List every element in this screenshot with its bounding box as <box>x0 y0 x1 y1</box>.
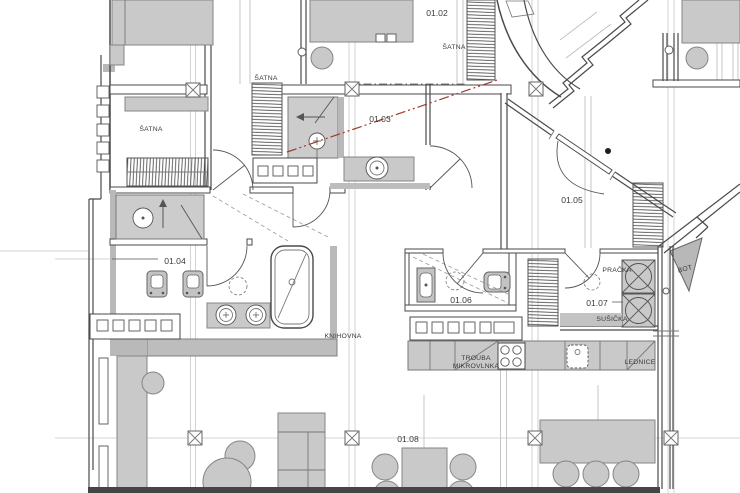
floor-plan-canvas: 01.02 01.03 01.04 01.05 01.06 01.07 01.0… <box>0 0 740 493</box>
floor-plan-page: 01.02 01.03 01.04 01.05 01.06 01.07 01.0… <box>0 0 740 493</box>
wardrobe-hatch-left <box>127 158 208 186</box>
room-label-0103: 01.03 <box>369 114 391 124</box>
wardrobe-hatch-hall <box>528 259 558 326</box>
dining-table <box>372 448 476 493</box>
chair <box>450 454 476 480</box>
bathtub <box>271 246 313 328</box>
washing-machine <box>622 260 655 293</box>
window-pane <box>99 446 108 490</box>
bed-center <box>298 0 413 69</box>
label-wardrobe-mid: ŠATNA <box>254 73 277 82</box>
stool <box>583 461 609 487</box>
drawer-cabinet <box>253 158 317 183</box>
label-wardrobe-left: ŠATNA <box>139 124 162 133</box>
small-wc <box>116 195 204 239</box>
kitchen-drawer-cabinet <box>410 317 522 340</box>
label-oven-line1: TROUBA <box>461 355 491 362</box>
room-label-0104: 01.04 <box>164 256 186 266</box>
door-hinge-dot <box>605 148 611 154</box>
toilet <box>183 271 203 297</box>
shoe-rack <box>670 238 702 291</box>
double-sink-vanity <box>207 303 270 328</box>
label-oven-line2: MIKROVLNKA <box>453 363 500 370</box>
nightstand <box>311 47 333 69</box>
wardrobe-hatch-mid <box>252 83 282 155</box>
toilet <box>147 271 167 297</box>
bookshelf-unit <box>147 339 337 356</box>
lowboard-cabinet <box>90 314 180 339</box>
kitchen-island <box>540 420 655 487</box>
room-label-0108: 01.08 <box>397 434 419 444</box>
room-label-0105: 01.05 <box>561 195 583 205</box>
wall-cabinet-band <box>117 356 147 493</box>
bottom-facade-wall <box>88 487 660 493</box>
room-label-0107: 01.07 <box>586 298 608 308</box>
room-label-0106: 01.06 <box>450 295 472 305</box>
label-wardrobe-top: ŠATNA <box>442 42 465 51</box>
label-washing-machine: PRAČKA <box>602 265 631 274</box>
nightstand <box>686 47 708 69</box>
facade-detail-squares <box>97 86 109 172</box>
sofa <box>278 413 325 493</box>
wardrobe-shelf <box>125 97 208 111</box>
label-bookshelf: KNIHOVNA <box>324 333 361 340</box>
kitchen-sink <box>567 345 588 368</box>
room-label-0102: 01.02 <box>426 8 448 18</box>
wardrobe-hatch-entry <box>633 183 663 247</box>
window-pane <box>99 358 108 424</box>
bed-right <box>665 0 740 69</box>
furniture <box>90 0 740 493</box>
bed-top-left <box>110 0 213 65</box>
plant <box>142 372 164 394</box>
chair <box>372 454 398 480</box>
kitchen-counter <box>408 341 655 370</box>
label-fridge: LEDNICE <box>625 359 656 366</box>
washbasin-counter <box>330 157 430 189</box>
stool <box>613 461 639 487</box>
stool <box>553 461 579 487</box>
label-dryer: SUŠIČKA <box>596 314 628 323</box>
wardrobe-hatch-top <box>467 0 495 80</box>
